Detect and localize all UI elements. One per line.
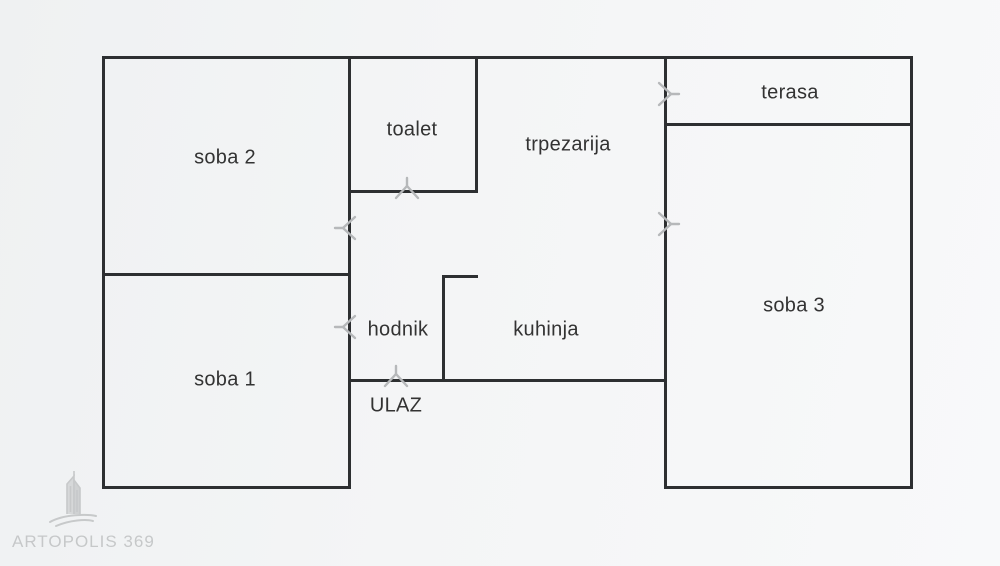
door-mark-icon-soba3-door (648, 207, 682, 241)
door-mark-icon-ulaz-door (379, 363, 413, 397)
watermark-text: ARTOPOLIS 369 (12, 532, 142, 552)
wall-kuhinja-partition (442, 275, 445, 382)
wall-kuhinja-stub (442, 275, 478, 278)
wall-terasa-bottom (664, 123, 913, 126)
building-logo-icon (36, 470, 108, 534)
room-label-toalet: toalet (387, 119, 438, 142)
wall-soba3-bottom (664, 486, 913, 489)
room-label-terasa: terasa (761, 82, 818, 105)
wall-soba1-soba2-divider (102, 273, 351, 276)
room-label-ulaz: ULAZ (370, 395, 422, 418)
wall-outer-top (102, 56, 913, 59)
room-label-soba-2: soba 2 (194, 147, 256, 170)
door-mark-icon-toalet-door (390, 175, 424, 209)
wall-mid-right-vertical (664, 56, 667, 489)
room-label-hodnik: hodnik (368, 319, 429, 342)
wall-outer-right (910, 56, 913, 489)
room-label-soba-3: soba 3 (763, 295, 825, 318)
room-label-trpezarija: trpezarija (525, 134, 610, 157)
room-label-soba-1: soba 1 (194, 369, 256, 392)
watermark: ARTOPOLIS 369 (8, 470, 188, 560)
floor-plan: soba 2toalettrpezarijaterasasoba 3soba 1… (0, 0, 1000, 566)
door-mark-icon-terasa-door (648, 77, 682, 111)
door-mark-icon-hodnik-door (332, 310, 366, 344)
wall-soba1-bottom (102, 486, 351, 489)
wall-toalet-right (475, 56, 478, 193)
room-label-kuhinja: kuhinja (513, 319, 578, 342)
door-mark-icon-soba2-door (332, 211, 366, 245)
